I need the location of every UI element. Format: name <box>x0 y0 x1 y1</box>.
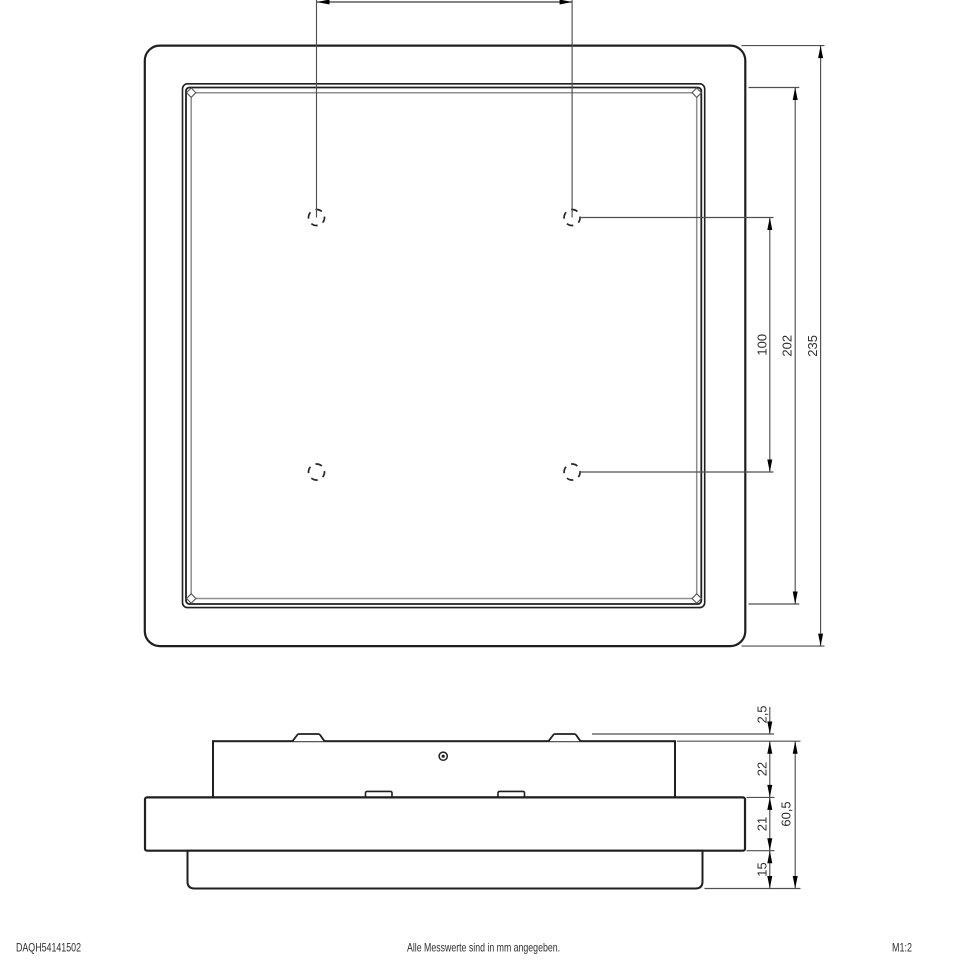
svg-text:202: 202 <box>780 335 795 357</box>
svg-text:DAQH54141502: DAQH54141502 <box>16 941 81 955</box>
svg-text:15: 15 <box>754 862 769 876</box>
svg-text:22: 22 <box>754 762 769 776</box>
svg-text:M1:2: M1:2 <box>892 941 912 955</box>
svg-text:60,5: 60,5 <box>779 801 794 826</box>
svg-text:100: 100 <box>754 334 769 356</box>
svg-text:2,5: 2,5 <box>754 705 769 723</box>
svg-text:21: 21 <box>754 817 769 831</box>
svg-text:235: 235 <box>805 335 820 357</box>
svg-text:Alle Messwerte sind in mm ange: Alle Messwerte sind in mm angegeben. <box>407 941 560 955</box>
